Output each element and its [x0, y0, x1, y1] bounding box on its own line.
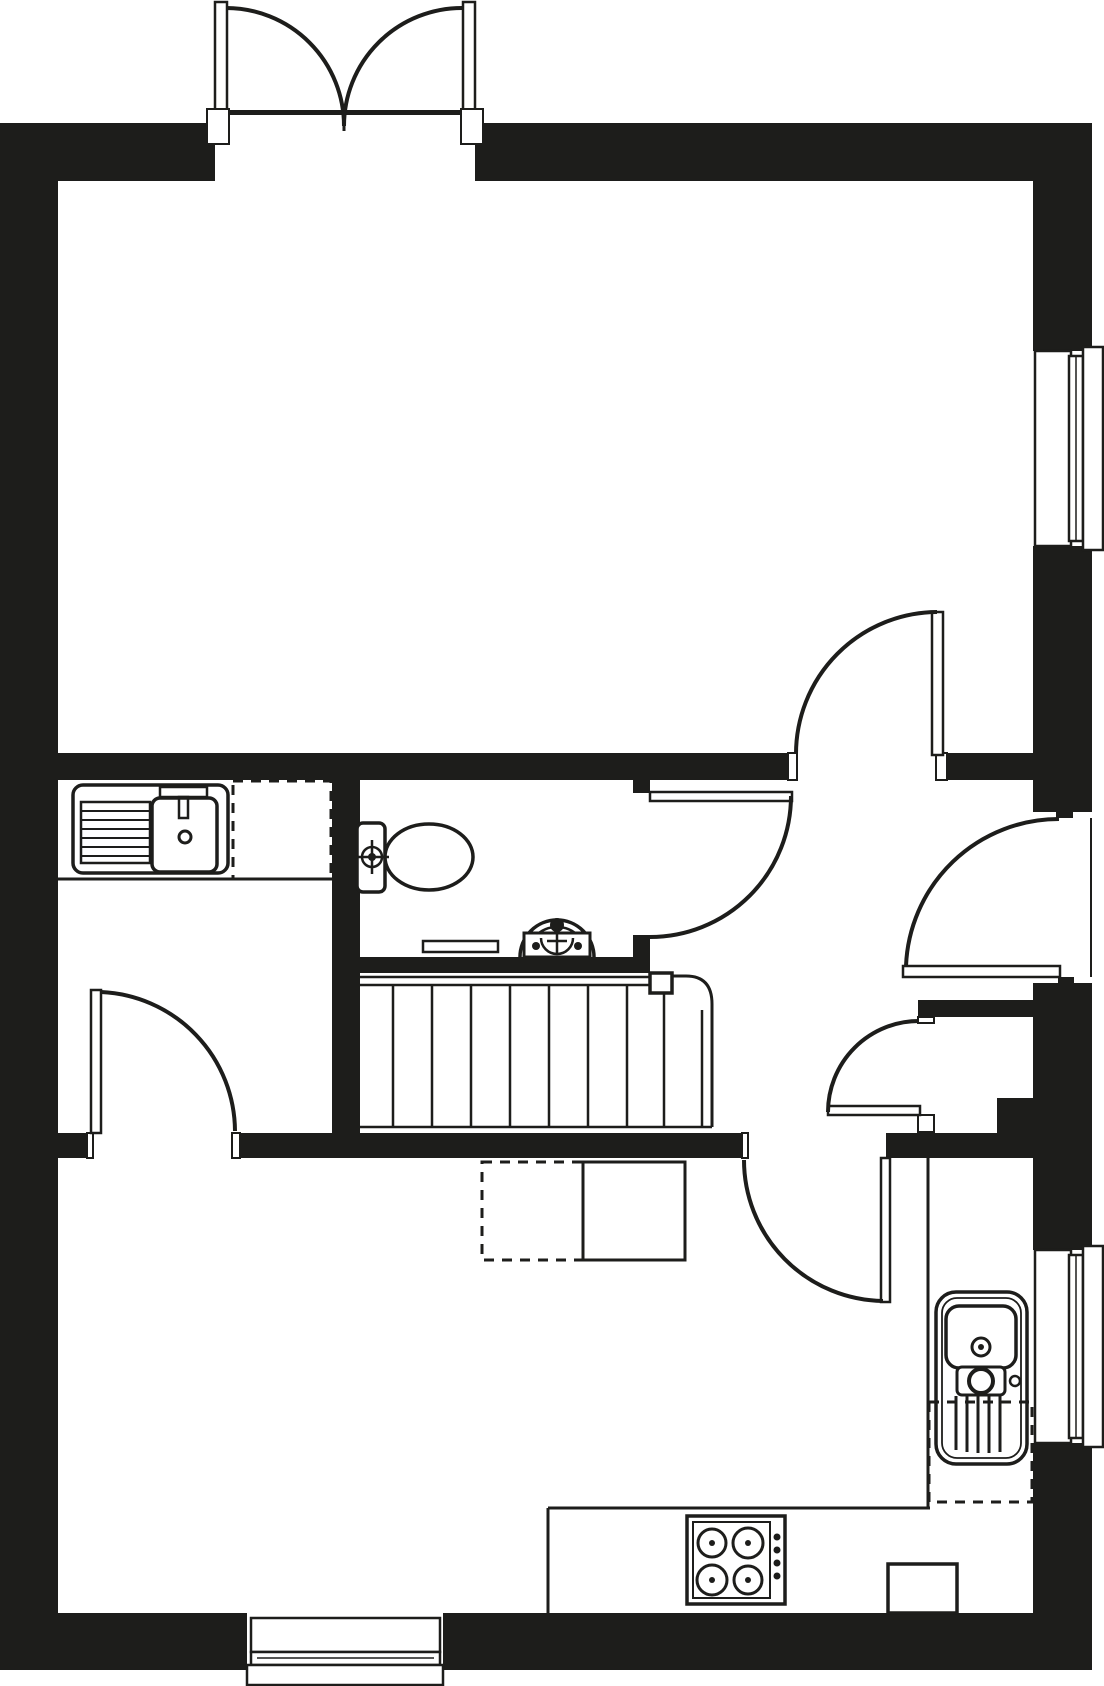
- wall-right-bottom: [1033, 1443, 1092, 1670]
- wall-hall-north-east: [945, 753, 1033, 780]
- wall-kitchen-north-west-stub: [58, 1133, 87, 1158]
- wall-hall-north-west: [58, 753, 795, 780]
- hob-knob-1: [774, 1534, 781, 1541]
- living-window-frame: [1035, 351, 1071, 546]
- floor-plan-page: [0, 0, 1104, 1686]
- living-door-swing: [796, 612, 937, 754]
- kitchen-sink-drain-dot: [978, 1344, 984, 1350]
- kitchen-sink-tap-hole: [969, 1369, 993, 1393]
- utility-fixtures: [58, 781, 332, 879]
- wall-right-mid: [1033, 546, 1092, 812]
- french-door-jamb-right: [461, 109, 483, 144]
- utility-appliance-space: [233, 781, 331, 879]
- kitchen-door-leaf: [881, 1158, 890, 1302]
- wall-right-upper: [1033, 123, 1092, 351]
- french-door-swing-right: [344, 8, 462, 126]
- wc-shelf: [423, 941, 498, 952]
- stair-treads: [393, 985, 627, 1127]
- utility-sink-tap-bar: [160, 787, 207, 797]
- kitchen-appliance-space: [482, 1162, 583, 1260]
- hob-burner-bottom-right-dot: [745, 1577, 751, 1583]
- kitchen-door-frame-west: [742, 1133, 748, 1158]
- stair-newel-post: [650, 973, 672, 993]
- cupboard-door-frame-upper: [918, 1017, 934, 1023]
- wall-cupboard-north: [918, 1000, 1033, 1017]
- living-door-frame-east: [936, 753, 947, 780]
- kitchen-unit-bottom-right: [888, 1564, 957, 1613]
- wall-left: [0, 123, 58, 1670]
- cupboard-door-leaf: [828, 1106, 920, 1115]
- kitchen-south-window-sill: [247, 1665, 443, 1685]
- living-door-leaf: [932, 612, 943, 755]
- hob-burner-top-left-dot: [709, 1540, 715, 1546]
- cupboard-door-swing: [828, 1021, 919, 1112]
- cupboard-door-frame-lower: [918, 1115, 934, 1132]
- french-door-swing-left: [226, 8, 344, 126]
- dining-door-swing: [101, 992, 235, 1131]
- kitchen-fixtures: [482, 1158, 1032, 1613]
- dining-door-leaf: [91, 990, 101, 1133]
- living-window-sill: [1083, 347, 1103, 550]
- toilet-bowl: [385, 824, 473, 890]
- staircase: [360, 973, 712, 1127]
- hob-knob-2: [774, 1547, 781, 1554]
- dining-door-frame-east: [232, 1133, 240, 1158]
- french-door-jamb-left: [207, 109, 229, 144]
- wall-bottom-right: [443, 1613, 1092, 1670]
- entry-french-doors: [207, 2, 483, 144]
- kitchen-unit-under-stairs: [583, 1162, 685, 1260]
- wc-fixtures: [355, 823, 594, 957]
- dining-door-frame-west: [87, 1133, 93, 1158]
- wall-kitchen-north-east: [886, 1133, 1033, 1158]
- basin-dot-right: [574, 942, 582, 950]
- living-door-frame-west: [788, 753, 797, 780]
- hob-burner-top-right-dot: [745, 1540, 751, 1546]
- wc-door-leaf: [650, 792, 792, 801]
- wall-utility-wc-divider: [332, 753, 360, 1158]
- wall-top-right: [475, 123, 1092, 181]
- stair-rail-outer: [672, 976, 712, 1127]
- kitchen-east-window-frame: [1035, 1250, 1071, 1443]
- wall-wc-door-jamb-south: [633, 935, 650, 973]
- wc-door-swing: [650, 796, 791, 937]
- wall-cupboard-corner: [997, 1098, 1033, 1133]
- kitchen-south-window-frame: [251, 1618, 440, 1652]
- wall-wc-south: [353, 957, 650, 973]
- hob-knob-3: [774, 1560, 781, 1567]
- basin-dot-left: [532, 942, 540, 950]
- hob-knob-4: [774, 1573, 781, 1580]
- hob-burner-bottom-left-dot: [709, 1577, 715, 1583]
- front-door-leaf: [903, 966, 1060, 977]
- wall-wc-door-jamb-north: [633, 780, 650, 793]
- wall-bottom-left: [0, 1613, 247, 1670]
- front-door-swing: [906, 819, 1059, 966]
- floor-plan: [0, 0, 1104, 1686]
- utility-sink-tap-stem: [179, 797, 188, 818]
- wall-kitchen-north-mid: [240, 1133, 742, 1158]
- kitchen-door-swing: [744, 1160, 883, 1301]
- wall-right-lower: [1033, 983, 1092, 1250]
- kitchen-east-window-sill: [1083, 1246, 1103, 1447]
